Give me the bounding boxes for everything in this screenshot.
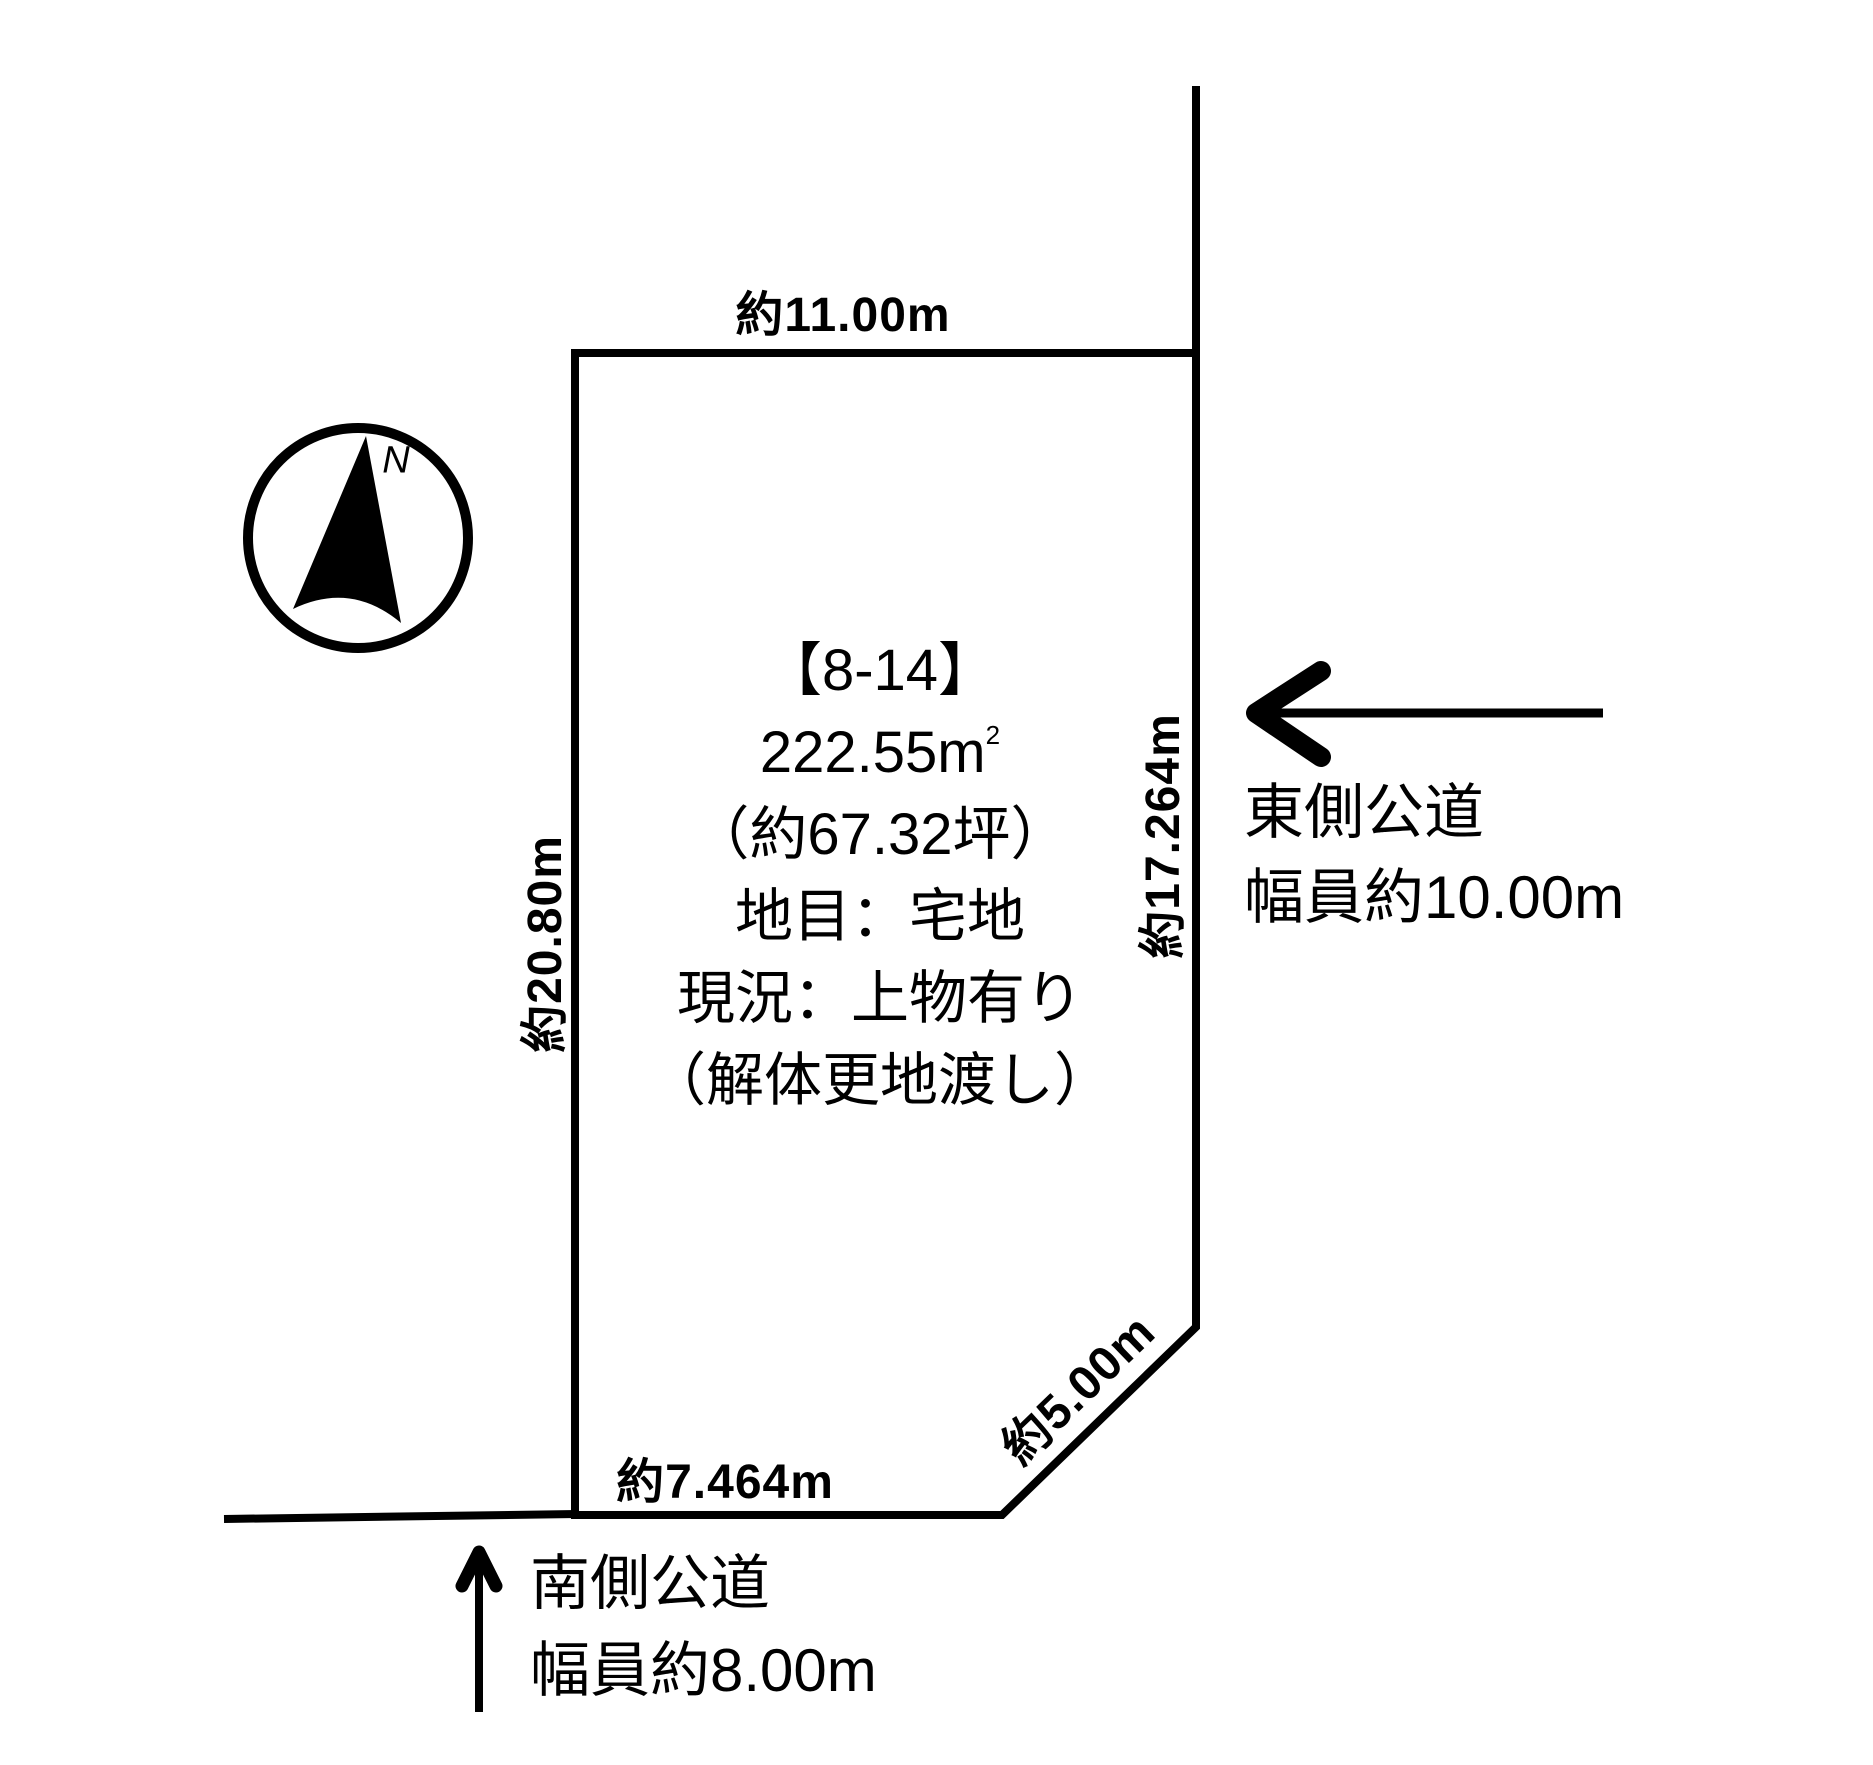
parcel-area-tsubo: （約67.32坪） xyxy=(648,794,1112,876)
compass-north-label: N xyxy=(382,440,409,483)
parcel-area-value: 222.55m xyxy=(760,720,986,785)
parcel-land-category: 地目：宅地 xyxy=(648,876,1112,958)
compass-icon xyxy=(248,428,468,648)
land-plot-diagram: N 約11.00m 約20.80m 約17.264m 約7.464m 約5.00… xyxy=(0,0,1873,1765)
south-road-arrow-icon xyxy=(462,1552,496,1712)
parcel-area-exponent: 2 xyxy=(986,720,1000,750)
parcel-delivery-condition: （解体更地渡し） xyxy=(648,1040,1112,1122)
east-road-name: 東側公道 xyxy=(1244,770,1624,855)
dimension-north-edge: 約11.00m xyxy=(735,275,950,345)
dimension-south-edge: 約7.464m xyxy=(616,1442,834,1512)
south-road-label: 南側公道 幅員約8.00m xyxy=(530,1540,877,1714)
parcel-area: 222.55m2 xyxy=(648,712,1112,794)
south-road-name: 南側公道 xyxy=(530,1540,877,1627)
east-road-arrow-icon xyxy=(1256,671,1603,757)
east-road-width: 幅員約10.00m xyxy=(1244,855,1624,940)
south-road-width: 幅員約8.00m xyxy=(530,1627,877,1714)
parcel-id: 【8-14】 xyxy=(648,630,1112,712)
parcel-info-block: 【8-14】 222.55m2 （約67.32坪） 地目：宅地 現況：上物有り … xyxy=(648,630,1112,1122)
dimension-east-edge: 約17.264m xyxy=(1123,713,1193,959)
south-road-edge-line xyxy=(224,1514,577,1519)
parcel-current-status: 現況：上物有り xyxy=(648,958,1112,1040)
east-road-label: 東側公道 幅員約10.00m xyxy=(1244,770,1624,940)
dimension-west-edge: 約20.80m xyxy=(505,835,575,1053)
